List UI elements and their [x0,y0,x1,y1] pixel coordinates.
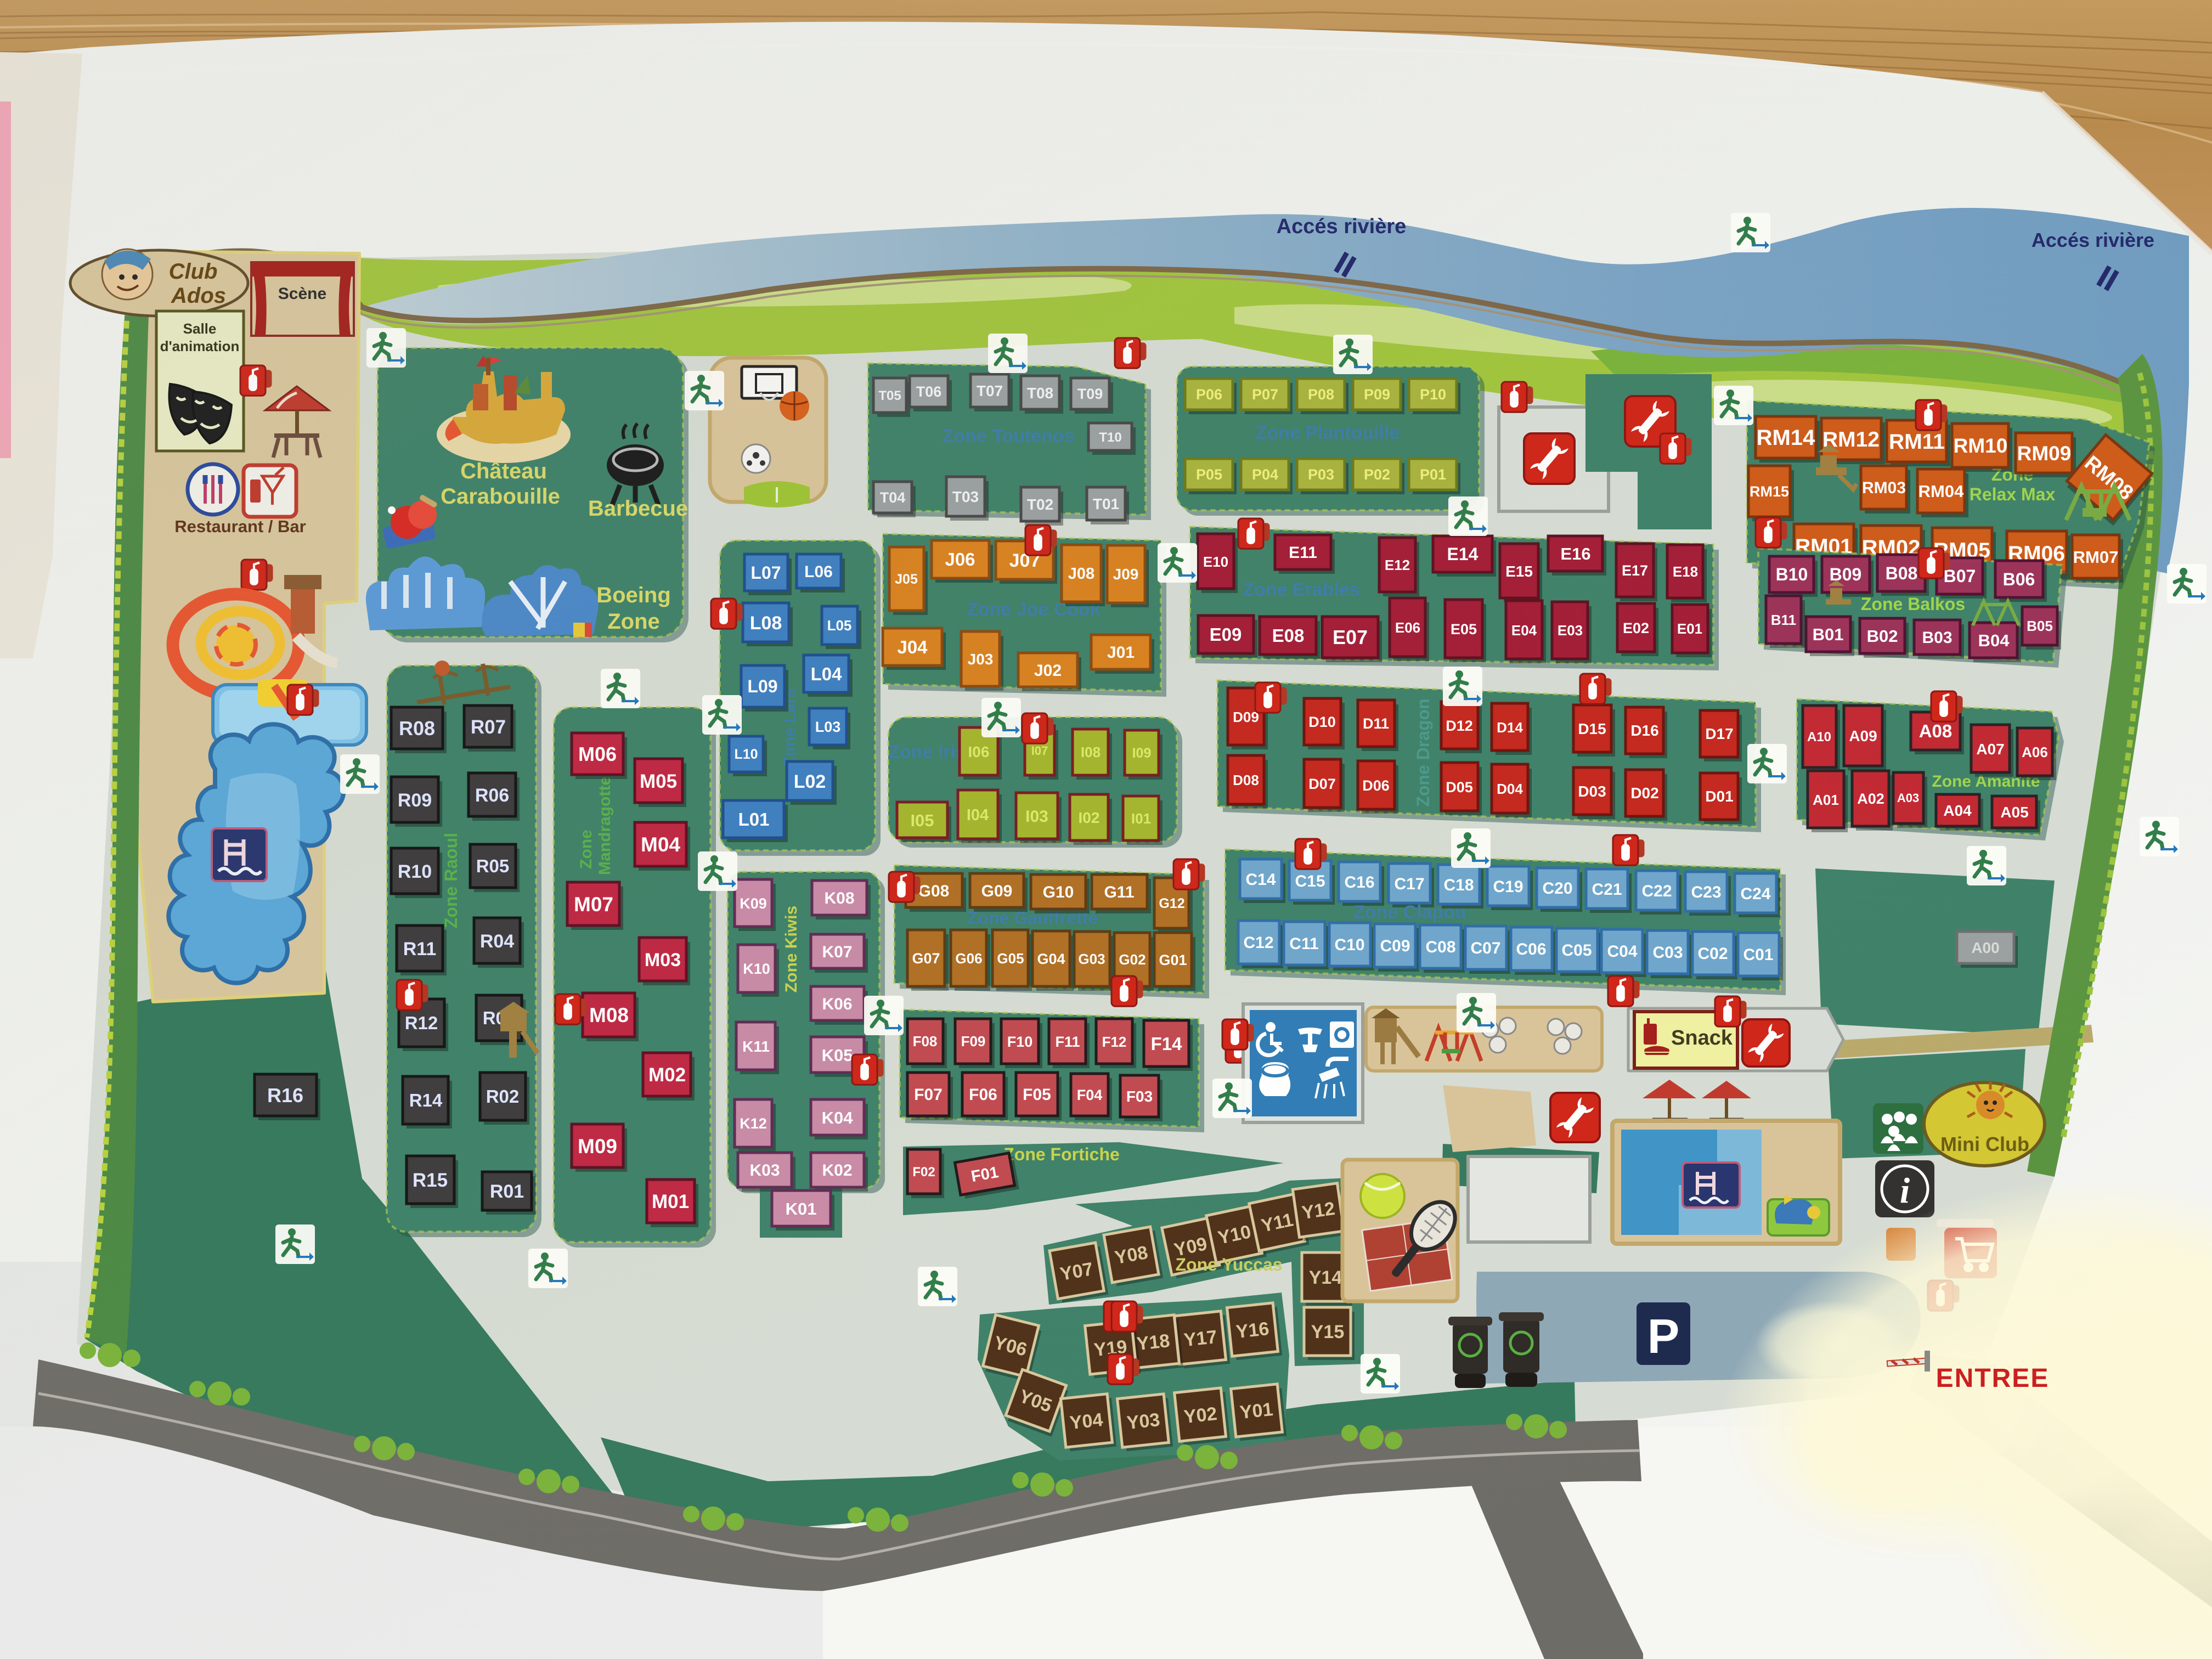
svg-text:ENTREE: ENTREE [1936,1364,2050,1393]
